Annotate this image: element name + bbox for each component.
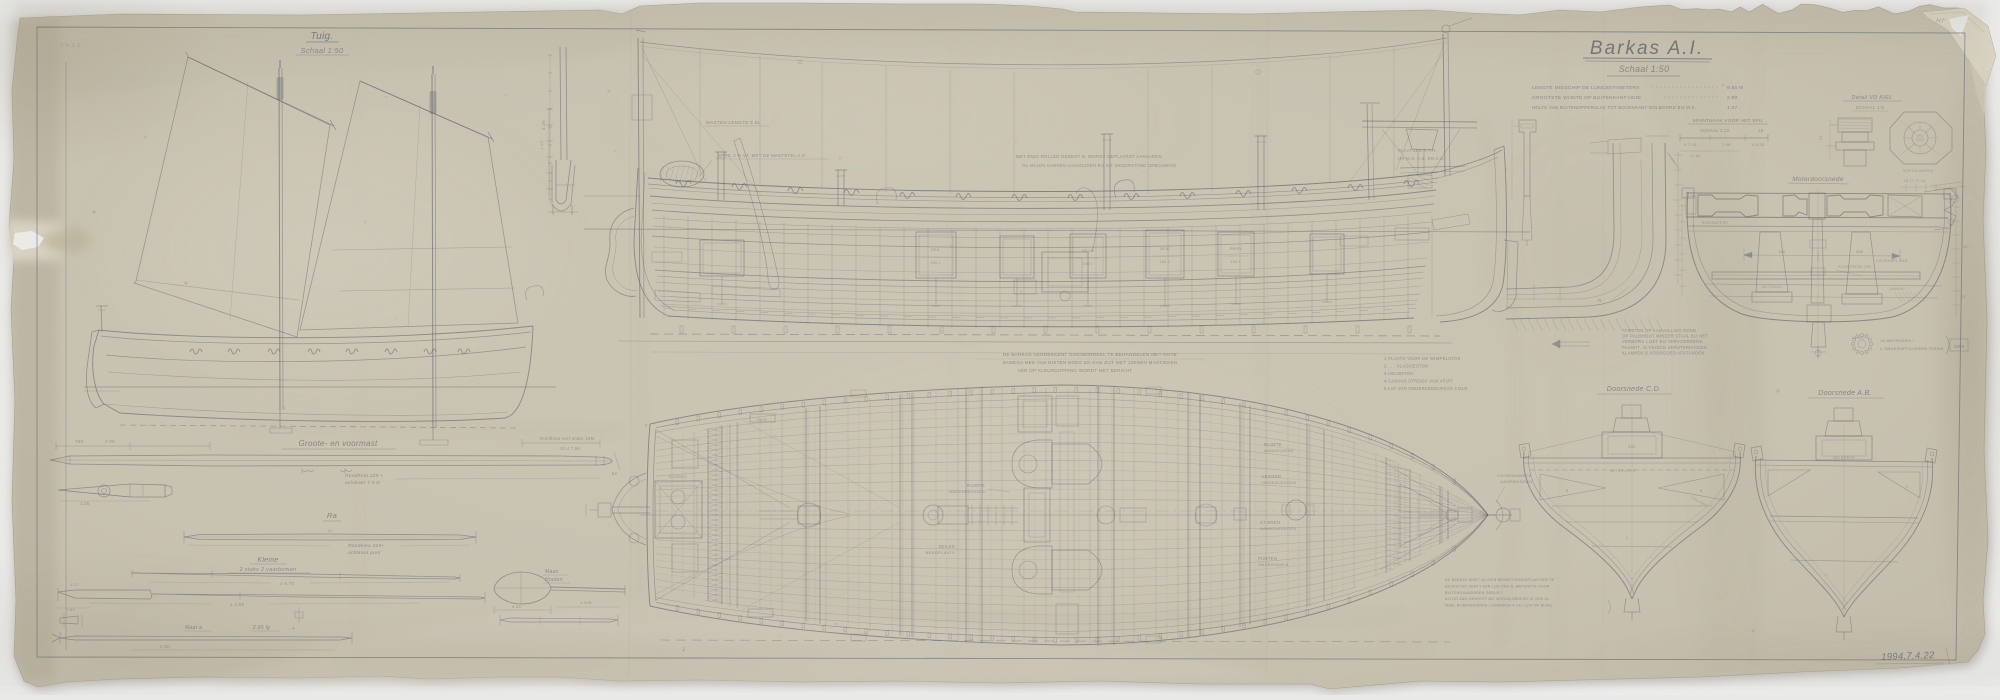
svg-text:DE BARKAS VERDEKKENT GINGBORDE: DE BARKAS VERDEKKENT GINGBORDEEL TE BEHA…: [1003, 352, 1177, 357]
svg-text:RUIMTE: RUIMTE: [1264, 442, 1282, 447]
svg-text:B: B: [1566, 489, 1569, 493]
svg-text:4.25: 4.25: [541, 120, 546, 130]
svg-text:≈: ≈: [283, 406, 286, 412]
svg-text:SCHAAL 1:10: SCHAAL 1:10: [1700, 128, 1730, 133]
svg-text:KLAMPEN B VOORGOED AFSTANDEN: KLAMPEN B VOORGOED AFSTANDEN: [1622, 350, 1704, 355]
svg-text:12: 12: [1961, 295, 1966, 299]
svg-text:OP PALMHOUT MINDER STAAL BIJ H: OP PALMHOUT MINDER STAAL BIJ HET: [1622, 334, 1708, 339]
svg-text:Doorsnede A.B.: Doorsnede A.B.: [1818, 390, 1871, 397]
svg-text:450: 450: [1628, 445, 1635, 449]
svg-text:LENGTE MIDSCHIP DE LIJNCENTI: LENGTE MIDSCHIP DE LIJNCENTIMETERS: [1532, 85, 1640, 91]
svg-text:Rondema 325+: Rondema 325+: [348, 543, 385, 549]
svg-text:Rondhout 225 +: Rondhout 225 +: [345, 473, 383, 479]
svg-text:150 L: 150 L: [930, 261, 941, 265]
svg-text:2 . . . VLAGGE: 2 . . . VLAGGESTOK: [1384, 364, 1428, 369]
svg-text:Detail VD KIEL: Detail VD KIEL: [1852, 95, 1893, 101]
svg-text:14 MATROZEN +: 14 MATROZEN +: [1880, 338, 1915, 343]
svg-text:C: C: [1906, 485, 1909, 489]
svg-text:2.90 .: 2.90 .: [1727, 95, 1741, 101]
svg-text:41: 41: [327, 528, 333, 533]
svg-text:1.10: 1.10: [539, 141, 544, 150]
svg-text:Rondhout vert onder 10M: Rondhout vert onder 10M: [540, 436, 595, 441]
svg-text:± 8.20: ± 8.20: [1752, 143, 1764, 147]
svg-text:750: 750: [75, 439, 84, 444]
svg-text:Schaal 1:50: Schaal 1:50: [301, 46, 344, 55]
svg-text:AANDRIJVING: AANDRIJVING: [1264, 448, 1294, 453]
svg-text:R: R: [1598, 298, 1602, 303]
svg-text:Maan: Maan: [545, 569, 559, 575]
svg-text:ALTIJD AAN GEWICHT BIJ VERVOLG: ALTIJD AAN GEWICHT BIJ VERVOLGBREUK IS O…: [1445, 597, 1551, 601]
svg-text:2.60: 2.60: [160, 644, 170, 649]
svg-text:2 stuks 2 vaarbomen: 2 stuks 2 vaarbomen: [239, 567, 297, 573]
svg-text:HOLTE VAN BUITENOPPERVLAK TOT: HOLTE VAN BUITENOPPERVLAK TOT BOVENKANT …: [1532, 105, 1696, 110]
svg-text:24: 24: [1819, 135, 1823, 140]
svg-text:1909: 1909: [1954, 344, 1965, 349]
svg-text:OLIE: OLIE: [1160, 246, 1170, 251]
svg-text:1994.7.4.22: 1994.7.4.22: [1881, 650, 1935, 663]
svg-text:2 ONDEROFFICIEREN TEZAM: 2 ONDEROFFICIEREN TEZAM: [1880, 346, 1944, 351]
svg-text:Schaal 1:50: Schaal 1:50: [1619, 64, 1670, 74]
svg-text:2.65 lg: 2.65 lg: [252, 625, 270, 631]
svg-text:ZEIL: ZEIL: [931, 247, 941, 252]
svg-text:Moterdoorsnede: Moterdoorsnede: [1792, 176, 1844, 183]
svg-text:ST EREN: ST EREN: [1260, 520, 1280, 525]
svg-text:SCHAAL 1:5: SCHAAL 1:5: [1856, 105, 1885, 110]
svg-text:2: 2: [682, 647, 686, 653]
svg-text:Groote- en voormast: Groote- en voormast: [298, 439, 378, 448]
svg-text:MAAL BIJBEHORENDE LOSMAKEN 4: MAAL BIJBEHORENDE LOSMAKEN 4 JULI (ZIE B…: [1445, 604, 1553, 608]
svg-text:4 CANVAS STROOK VAN AFUIT: 4 CANVAS STROOK VAN AFUIT: [1384, 379, 1453, 384]
svg-text:GROOTSTE WIJDTE OP BUITENKA: GROOTSTE WIJDTE OP BUITENKANT HUID: [1532, 95, 1641, 101]
svg-text:Ra: Ra: [327, 511, 337, 520]
svg-text:SCHROEFAS 290: SCHROEFAS 290: [1838, 265, 1871, 269]
svg-text:PROV: PROV: [1230, 246, 1243, 251]
svg-text:Maat a: Maat a: [185, 625, 202, 631]
svg-text:150 L: 150 L: [1230, 260, 1241, 264]
svg-text:ONDERDEKKING: ONDERDEKKING: [949, 489, 985, 494]
svg-text:2.05: 2.05: [105, 439, 115, 444]
svg-text:DE BARKAS MOET ALLEEN BEVESTI: DE BARKAS MOET ALLEEN BEVESTIGINGSPLAATS…: [1445, 578, 1555, 582]
svg-text:MANGAT: MANGAT: [1890, 287, 1905, 291]
svg-text:achtkant 7.5 D: achtkant 7.5 D: [345, 480, 380, 486]
svg-text:Barkas A.I.: Barkas A.I.: [1590, 38, 1704, 59]
svg-text:RUIMTE: RUIMTE: [967, 483, 985, 488]
svg-text:ZEILEN: ZEILEN: [939, 544, 955, 549]
svg-text:SCHROEF: SCHROEF: [669, 475, 688, 479]
svg-text:9.50 M: 9.50 M: [1727, 85, 1743, 91]
svg-text:AANHOUDINGEN: AANHOUDINGEN: [1260, 526, 1296, 531]
svg-text:1.345: 1.345: [580, 600, 592, 605]
svg-text:NU MALEN KUNNEN AANHOUDEN BIJ: NU MALEN KUNNEN AANHOUDEN BIJ DIT WEDERS…: [1022, 163, 1177, 168]
svg-text:ONDERHAALS: ONDERHAALS: [1258, 562, 1289, 567]
svg-text:1.07 .: 1.07 .: [1727, 105, 1741, 111]
svg-text:AFMETEN OP AANVULLING ROND: AFMETEN OP AANVULLING ROND: [1622, 328, 1696, 333]
svg-text:± 5.70: ± 5.70: [280, 581, 294, 586]
svg-text:1.54: 1.54: [66, 607, 75, 612]
svg-text:18: 18: [1758, 128, 1764, 133]
svg-text:B: B: [1700, 489, 1703, 493]
svg-text:VOETKLAMPEN: VOETKLAMPEN: [1903, 169, 1933, 173]
svg-text:11.04: 11.04: [1690, 154, 1701, 158]
svg-text:Doorsnede C.D.: Doorsnede C.D.: [1607, 386, 1661, 393]
svg-text:5 LAT VAN ONDERZEEBARKAS 4 DL: 5 LAT VAN ONDERZEEBARKAS 4 DLN: [1384, 386, 1468, 391]
svg-text:450: 450: [1778, 249, 1786, 254]
svg-text:H7: H7: [1936, 18, 1945, 25]
svg-text:± 7.10: ± 7.10: [1684, 143, 1696, 147]
svg-text:PALMHT. IS VNODIG VERSTERKINGE: PALMHT. IS VNODIG VERSTERKINGEN: [1622, 345, 1707, 350]
svg-text:52: 52: [612, 471, 618, 476]
svg-text:3 HELMSTOK: 3 HELMSTOK: [1384, 371, 1413, 376]
svg-text:BERGPLAATS: BERGPLAATS: [926, 550, 955, 555]
svg-text:1 BODEMPL 7MM: 1 BODEMPL 7MM: [1876, 259, 1908, 263]
svg-text:VER OP KLEURDOPPING WORDT MET: VER OP KLEURDOPPING WORDT MET BERICHT: [1018, 368, 1133, 373]
svg-text:VERBORG LIJST BIJ VERVOERDERS: VERBORG LIJST BIJ VERVOERDERS: [1622, 339, 1702, 344]
svg-text:PUNTEN: PUNTEN: [1258, 556, 1277, 561]
svg-text:PLAATSEN R.T.R.: PLAATSEN R.T.R.: [1398, 148, 1437, 153]
svg-text:RUIM: RUIM: [757, 418, 767, 422]
svg-text:MOTORBED: MOTORBED: [1762, 285, 1783, 289]
svg-text:450: 450: [1856, 249, 1864, 254]
svg-text:1.35: 1.35: [80, 501, 90, 506]
svg-text:7.96: 7.96: [1722, 143, 1731, 147]
svg-text:achtkant punt: achtkant punt: [348, 550, 381, 556]
svg-text:150 L: 150 L: [1159, 260, 1170, 264]
svg-text:BUITENGAANDEREN GEBUILT.: BUITENGAANDEREN GEBUILT.: [1445, 591, 1503, 595]
svg-text:SPANTHAAK VOOR HET SPIL: SPANTHAAK VOOR HET SPIL: [1693, 118, 1764, 123]
svg-text:SPRIL 2 % VT. MET DE MASTSTEL: SPRIL 2 % VT. MET DE MASTSTEL A.S.: [718, 153, 807, 158]
svg-text:ONDERLEGGEN: ONDERLEGGEN: [1262, 480, 1296, 485]
svg-text:1 PLAATS VOOR DE WIMPELSTOK: 1 PLAATS VOOR DE WIMPELSTOK: [1384, 356, 1461, 361]
svg-text:± 2.50: ± 2.50: [230, 602, 244, 607]
svg-text:18 17 17 16: 18 17 17 16: [1904, 179, 1925, 183]
svg-text:MOTORVLOER: MOTORVLOER: [1610, 469, 1636, 473]
svg-text:13 1/2: 13 1/2: [1852, 336, 1864, 340]
svg-text:Kleine: Kleine: [257, 557, 278, 564]
svg-text:MET ENIG ROLLEN GEDEKT B. WORD: MET ENIG ROLLEN GEDEKT B. WORDT GEPLAATS…: [1016, 154, 1162, 159]
svg-text:BEVESTIGT HEEFT AAN LOS DAN B.: BEVESTIGT HEEFT AAN LOS DAN B. BEPERKTE …: [1445, 584, 1550, 588]
svg-text:KOELWATERS: KOELWATERS: [1702, 221, 1728, 225]
svg-text:LEGGEN: LEGGEN: [1262, 474, 1281, 479]
svg-text:10.4 7.50: 10.4 7.50: [560, 446, 581, 451]
svg-text:+: +: [292, 626, 295, 632]
svg-text:0.55: 0.55: [512, 604, 521, 609]
svg-text:HR M.S. A.B. EN C.D.: HR M.S. A.B. EN C.D.: [1398, 156, 1445, 161]
svg-text:1.17: 1.17: [70, 582, 79, 587]
svg-text:Tuig.: Tuig.: [311, 31, 334, 42]
svg-text:ZAMEGA MEE VAN BUITEN BOEG EN: ZAMEGA MEE VAN BUITEN BOEG EN DAN ZIJT M…: [1003, 360, 1178, 365]
svg-text:7 5 3 1: 7 5 3 1: [60, 43, 80, 49]
svg-text:MASTEN LENGTE 5 EL: MASTEN LENGTE 5 EL: [706, 120, 761, 125]
svg-text:55: 55: [1963, 245, 1968, 249]
